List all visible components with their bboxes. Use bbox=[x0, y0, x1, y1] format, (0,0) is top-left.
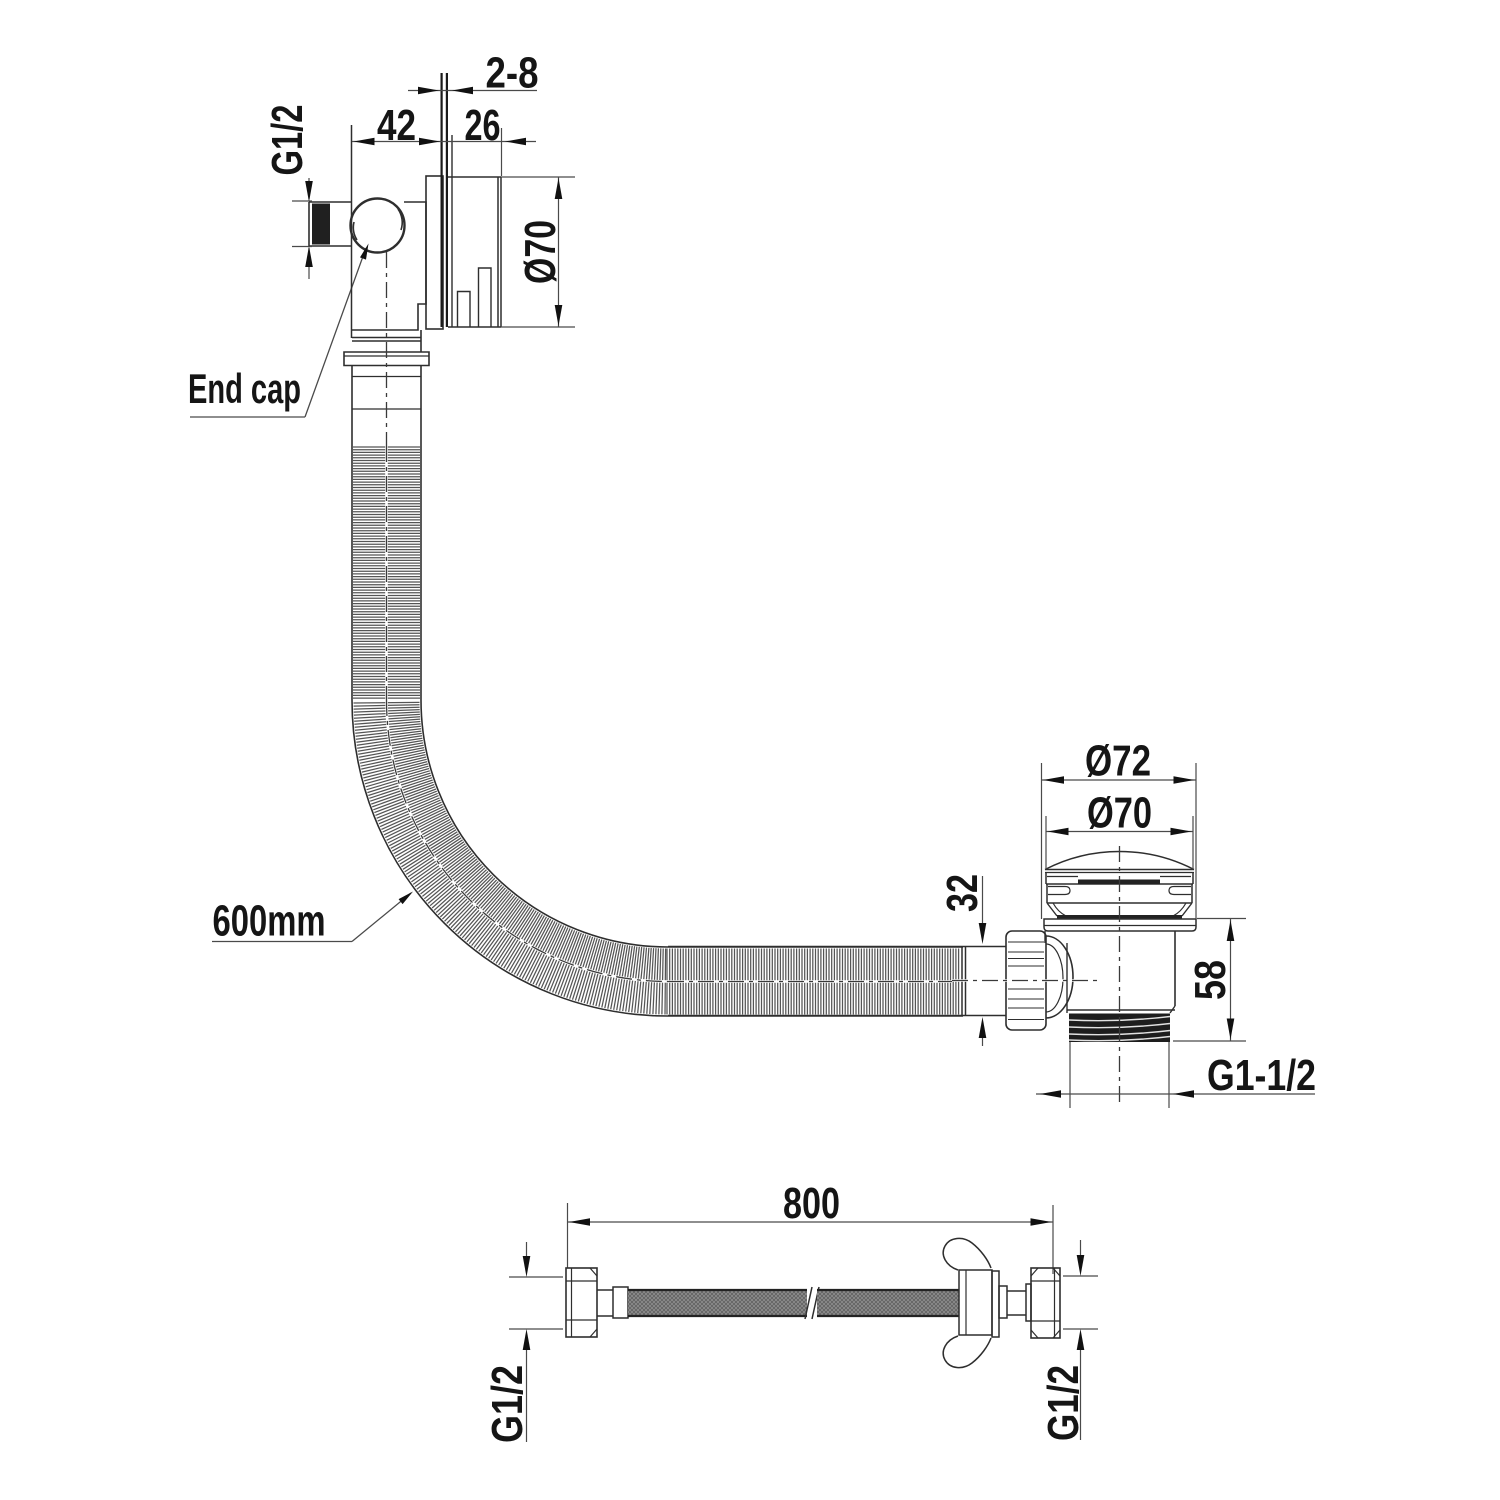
svg-text:G1-1/2: G1-1/2 bbox=[1207, 1051, 1316, 1100]
svg-text:600mm: 600mm bbox=[213, 897, 326, 946]
svg-text:58: 58 bbox=[1186, 960, 1235, 1000]
svg-text:800: 800 bbox=[783, 1179, 840, 1228]
svg-text:26: 26 bbox=[465, 101, 501, 150]
svg-text:Ø72: Ø72 bbox=[1085, 737, 1151, 786]
svg-text:Ø70: Ø70 bbox=[516, 220, 565, 284]
svg-text:Ø70: Ø70 bbox=[1087, 789, 1152, 838]
svg-text:G1/2: G1/2 bbox=[483, 1365, 532, 1443]
svg-text:G1/2: G1/2 bbox=[1039, 1365, 1088, 1441]
svg-text:G1/2: G1/2 bbox=[263, 105, 312, 176]
svg-text:2-8: 2-8 bbox=[486, 49, 539, 98]
svg-text:42: 42 bbox=[377, 101, 416, 150]
svg-text:32: 32 bbox=[938, 874, 987, 912]
svg-text:End cap: End cap bbox=[188, 365, 301, 412]
